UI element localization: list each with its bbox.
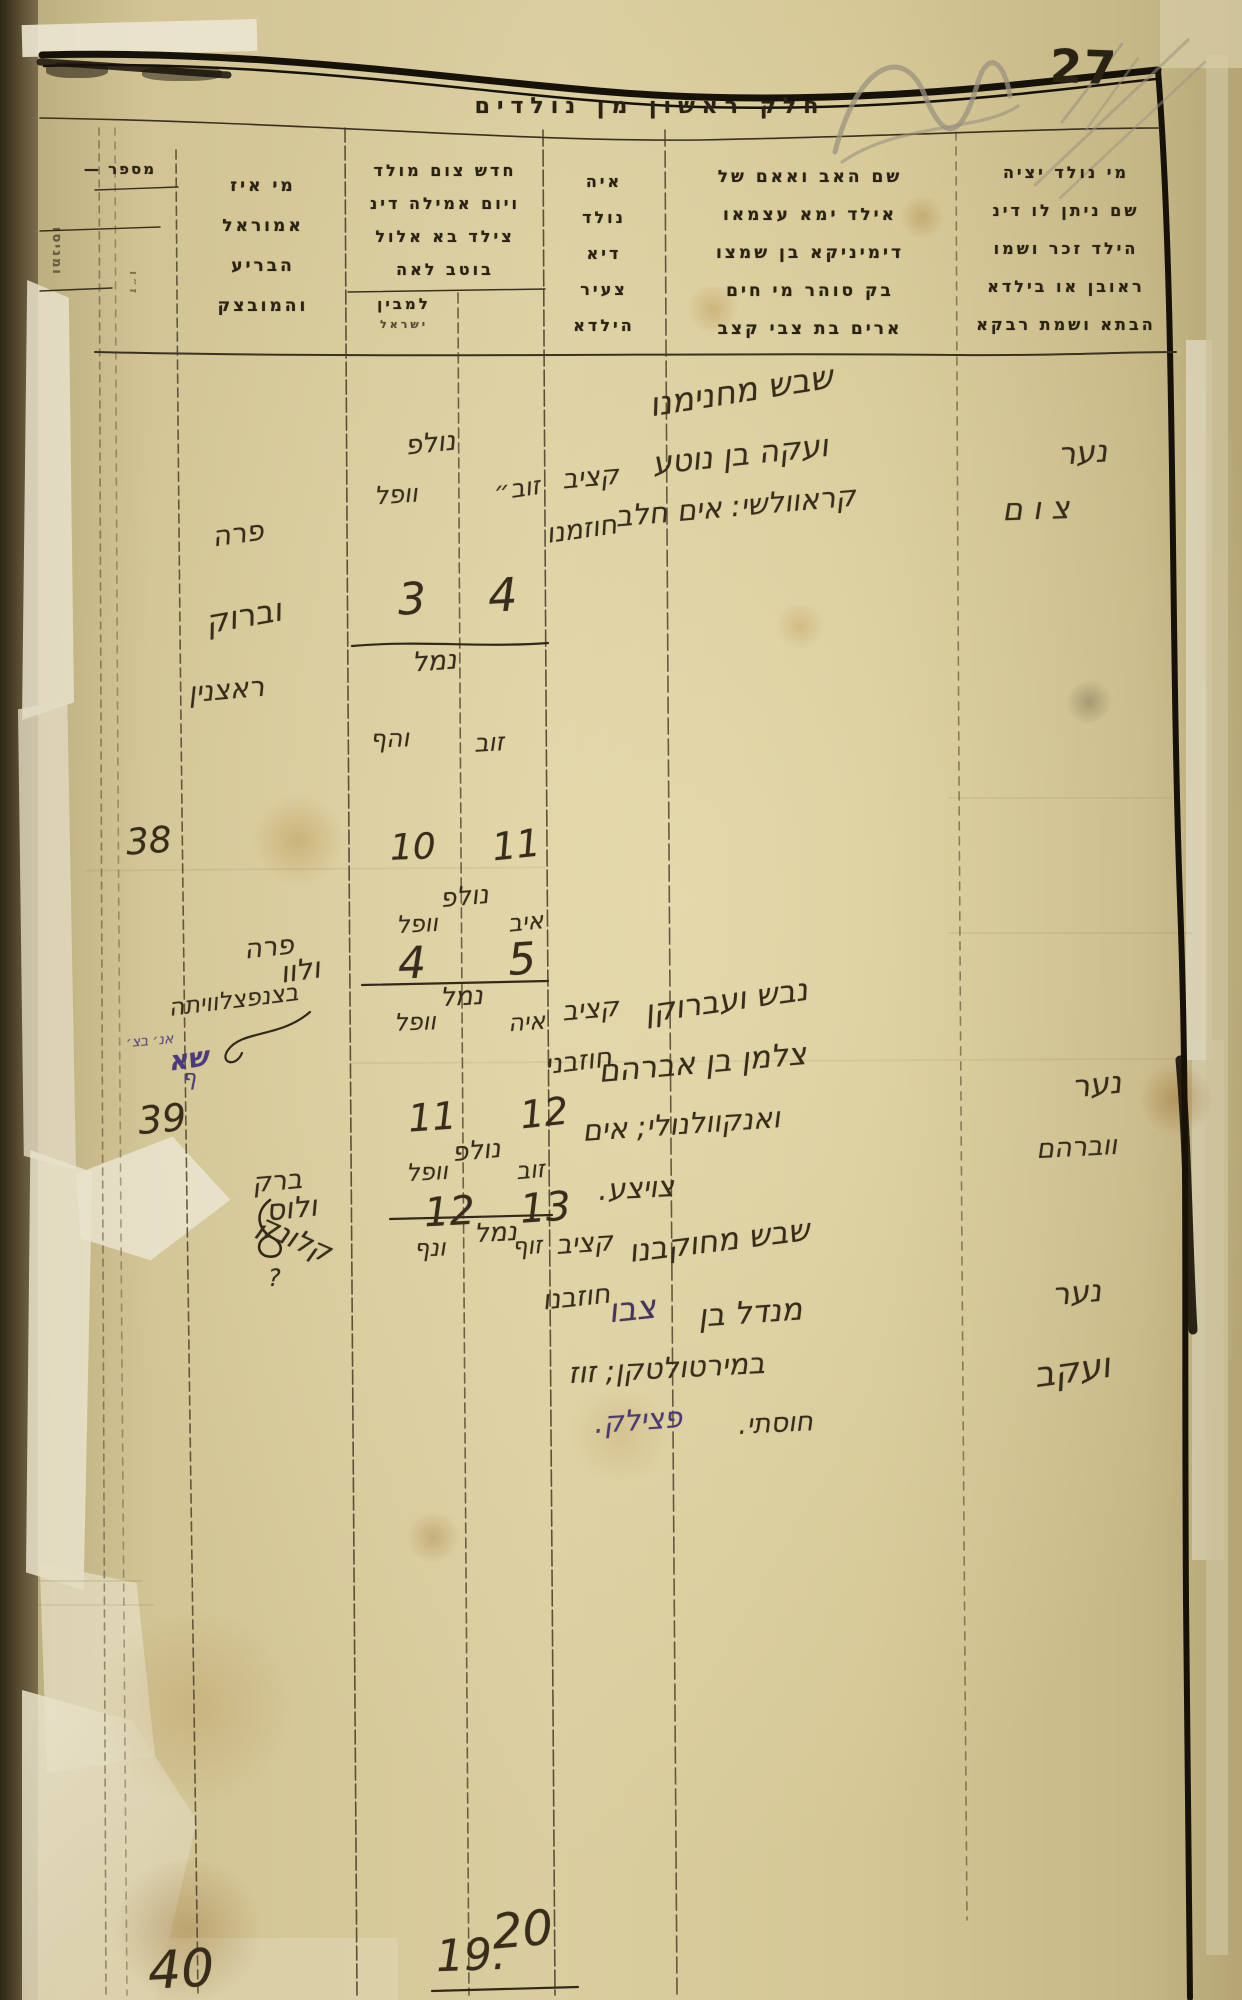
entry-38-milah-weekday-left: והף: [370, 725, 410, 751]
entry-39-born-word: נולפ: [439, 882, 490, 912]
stain: [404, 1512, 462, 1562]
entry-40-row-number: 40: [147, 1942, 216, 1997]
entry-39-born-day-right: 5: [506, 937, 537, 983]
entry-40-parents-line-2-purple: צבו: [606, 1290, 657, 1328]
entry-39-born-weekday-left: וופל: [395, 911, 438, 937]
entry-40-born-weekday-right: זוב: [515, 1157, 546, 1183]
top-frame-left-blob: [40, 62, 228, 75]
entry-40-born-day-right: 13: [519, 1186, 573, 1229]
entry-39-child-name: ווברהם: [1035, 1132, 1117, 1163]
torn-edge-strip-4: [32, 1563, 161, 1777]
entry-38-milah-word: נמל: [411, 646, 457, 676]
entry-39-parents-line-2: צלמן בן אברהם: [597, 1039, 807, 1088]
purple-annotation-line-3: ף: [182, 1068, 196, 1090]
entry-39-milah-weekday-left: וופל: [394, 1009, 437, 1034]
entry-38-born-weekday-right: זוב״: [492, 473, 541, 504]
entry-39-milah-day-right: 12: [518, 1092, 570, 1135]
entry-38-midwife-line-1: פרה: [210, 517, 265, 552]
entry3-milah-underline: [432, 1987, 578, 1991]
entry-38-parents-line-1: שבש מחנימנו: [647, 360, 835, 422]
header-dates-col: חדש צום מולד ויום אמילה דינ צילד בא אלול…: [352, 154, 538, 286]
header-bottom-line: [95, 352, 1176, 355]
entry-38-child-name: צום: [1001, 493, 1079, 527]
stain: [96, 1612, 296, 1802]
entry-40-milah-day-right: 20: [490, 1903, 555, 1956]
entry-39-parents-line-4: צויצע.: [597, 1172, 675, 1205]
entry-38-born-day-left: 3: [397, 578, 427, 623]
vline-parents-child: [956, 132, 967, 1920]
number-col-rule-3: [40, 288, 112, 291]
header-number-side-note-2: ז״ו: [128, 252, 139, 296]
entry-38-midwife-line-2: וברוק: [203, 594, 284, 639]
right-page-border: [1158, 70, 1190, 1998]
right-page-under-edge-1: [1186, 340, 1212, 1060]
stain: [772, 604, 828, 648]
entry-39-midwife-line-3: בצנפצלוויתה: [167, 980, 299, 1020]
entry-39-row-number: 39: [136, 1098, 187, 1140]
right-border-thick-segment: [1180, 1060, 1193, 1330]
entry-40-born-word: נולפ: [451, 1136, 502, 1166]
entry-39-born-weekday-right: איב: [507, 908, 545, 936]
entry-40-parents-line-4-ink: חוסתי.: [737, 1408, 813, 1439]
ink-smudge-top-left-1: [46, 62, 108, 78]
entry-40-child-name: ועקב: [1032, 1349, 1113, 1394]
entry-39-parents-line-3: ואנקוולנולי; אים: [581, 1103, 781, 1146]
entry-38-milah-day-right: 11: [490, 824, 542, 867]
header-child-col: מי נולד יציה שם ניתן לו דינ הילד זכר ושמ…: [976, 154, 1156, 344]
torn-edge-strip-2: [18, 700, 76, 1170]
entry-40-where-line-1: קציב: [555, 1228, 614, 1259]
entry-40-parents-line-3: במירטולטקן; זוז: [567, 1349, 765, 1388]
torn-flap-1: [74, 1133, 234, 1265]
entry-39-milah-word: נמל: [439, 983, 483, 1011]
vline-midwife-dates: [345, 128, 357, 1995]
entry-39-child-sex: נער: [1071, 1068, 1123, 1104]
right-page-under-edge-3: [1206, 55, 1228, 1955]
entry-39-where-line-2: חוזבני: [544, 1044, 614, 1079]
entry-40-child-sex: נער: [1051, 1276, 1103, 1311]
stain: [250, 795, 346, 885]
entry-38-row-number: 38: [125, 822, 173, 861]
entry-38-midwife-line-3: ראצנין: [187, 673, 265, 708]
entry-40-milah-weekday-left: ונף: [414, 1235, 446, 1260]
midwife2-flourish-tail: [225, 1012, 310, 1062]
pale-bottom-strip: [58, 1938, 398, 2000]
header-parents-col: שם האב ואאם של אילד ימא עצמאו דימיניקא ב…: [672, 158, 948, 348]
torn-edge-strip-1: [22, 280, 74, 720]
entry-40-midwife-mark: ?: [268, 1266, 281, 1290]
header-midwife-col: מי איז אמוראל הבריע והמובצק: [188, 166, 338, 326]
entry-38-where-line-1: קציב: [561, 462, 620, 494]
entry-40-where-line-2: חוזבנו: [541, 1281, 612, 1315]
top-right-corner-light: [1160, 0, 1242, 68]
entry-40-milah-weekday-right: זוף: [511, 1233, 543, 1259]
top-left-torn-strip: [22, 19, 258, 57]
number-col-rule-1: [95, 187, 178, 190]
entry-40-parents-line-2-ink: מנדל בן: [697, 1294, 803, 1332]
header-dates-sub-2: ישראל: [352, 319, 456, 330]
entry-39-where-line-1: קציב: [561, 994, 620, 1026]
entry-39-born-day-left: 4: [397, 942, 427, 987]
header-dates-sub-1: למבין: [352, 297, 456, 312]
dates-col-inner-line: [348, 289, 545, 292]
register-title: חלק ראשון מן נולדים: [430, 96, 870, 118]
scanned-register-page: 27 חלק ראשון מן נולדים מספר — ומניסו ז״ו…: [0, 0, 1242, 2000]
header-where-col: איה נולד דיא צעיר הילדא: [548, 164, 660, 344]
stain: [1056, 671, 1123, 733]
entry-40-parents-line-4-purple: פצילק.: [593, 1403, 683, 1438]
entry-38-born-day-right: 4: [487, 571, 519, 618]
entry-38-born-weekday-left: וופל: [373, 481, 418, 509]
entry-38-where-line-2: חוזמנו: [544, 511, 618, 548]
entry-39-milah-weekday-right: איה: [507, 1009, 546, 1036]
entry-38-child-sex: נער: [1057, 436, 1108, 470]
entry-39-parents-line-1: נבש ועברוקן: [643, 975, 810, 1029]
top-frame-thick-line: [42, 54, 1158, 98]
page-number: 27: [1049, 43, 1119, 91]
torn-edge-strip-3: [26, 1150, 98, 1590]
entry-39-milah-day-left: 11: [407, 1096, 458, 1137]
entry-38-milah-day-left: 10: [389, 829, 436, 867]
right-page-under-edge-2: [1192, 1040, 1224, 1560]
entry-40-born-day-left: 12: [423, 1191, 476, 1234]
header-number-side-note: ומניסו: [50, 198, 63, 276]
left-scan-edge: [0, 0, 38, 2000]
entry-38-parents-line-2: ועקה בן נוטע: [651, 431, 830, 480]
vline-margin-2: [115, 128, 127, 1995]
title-underline: [40, 118, 1160, 140]
entry-40-born-weekday-left: וופל: [405, 1159, 448, 1185]
header-number-label: מספר —: [64, 162, 176, 177]
stain: [1140, 1060, 1212, 1138]
ink-smudge-top-left-2: [142, 66, 222, 81]
entry-38-parents-line-3: קראוולשי: אים חלב: [614, 482, 857, 532]
entry-40-parents-line-1: שבש מחוקבנו: [627, 1215, 812, 1268]
vline-margin-1: [99, 128, 106, 1995]
entry-38-born-word: נולפ: [404, 427, 457, 459]
entry-38-milah-weekday-right: זוב: [473, 729, 504, 756]
